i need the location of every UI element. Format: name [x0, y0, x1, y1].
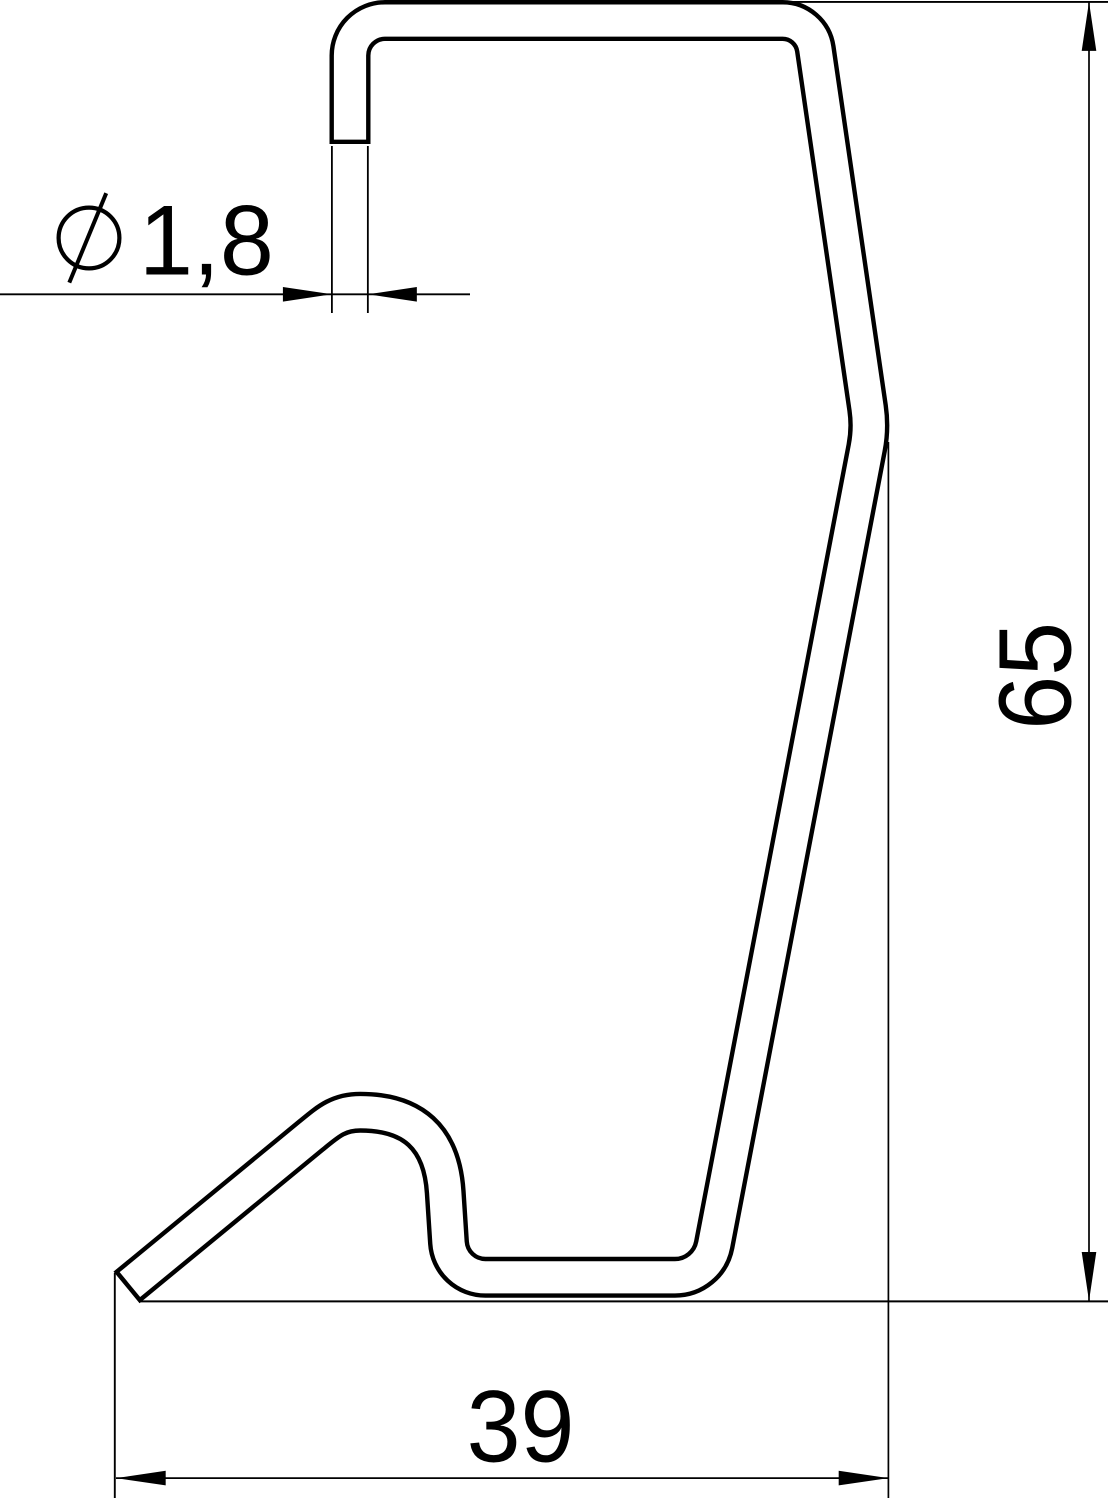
- svg-text:65: 65: [977, 622, 1093, 730]
- svg-text:39: 39: [467, 1370, 575, 1484]
- svg-text:1,8: 1,8: [139, 184, 274, 295]
